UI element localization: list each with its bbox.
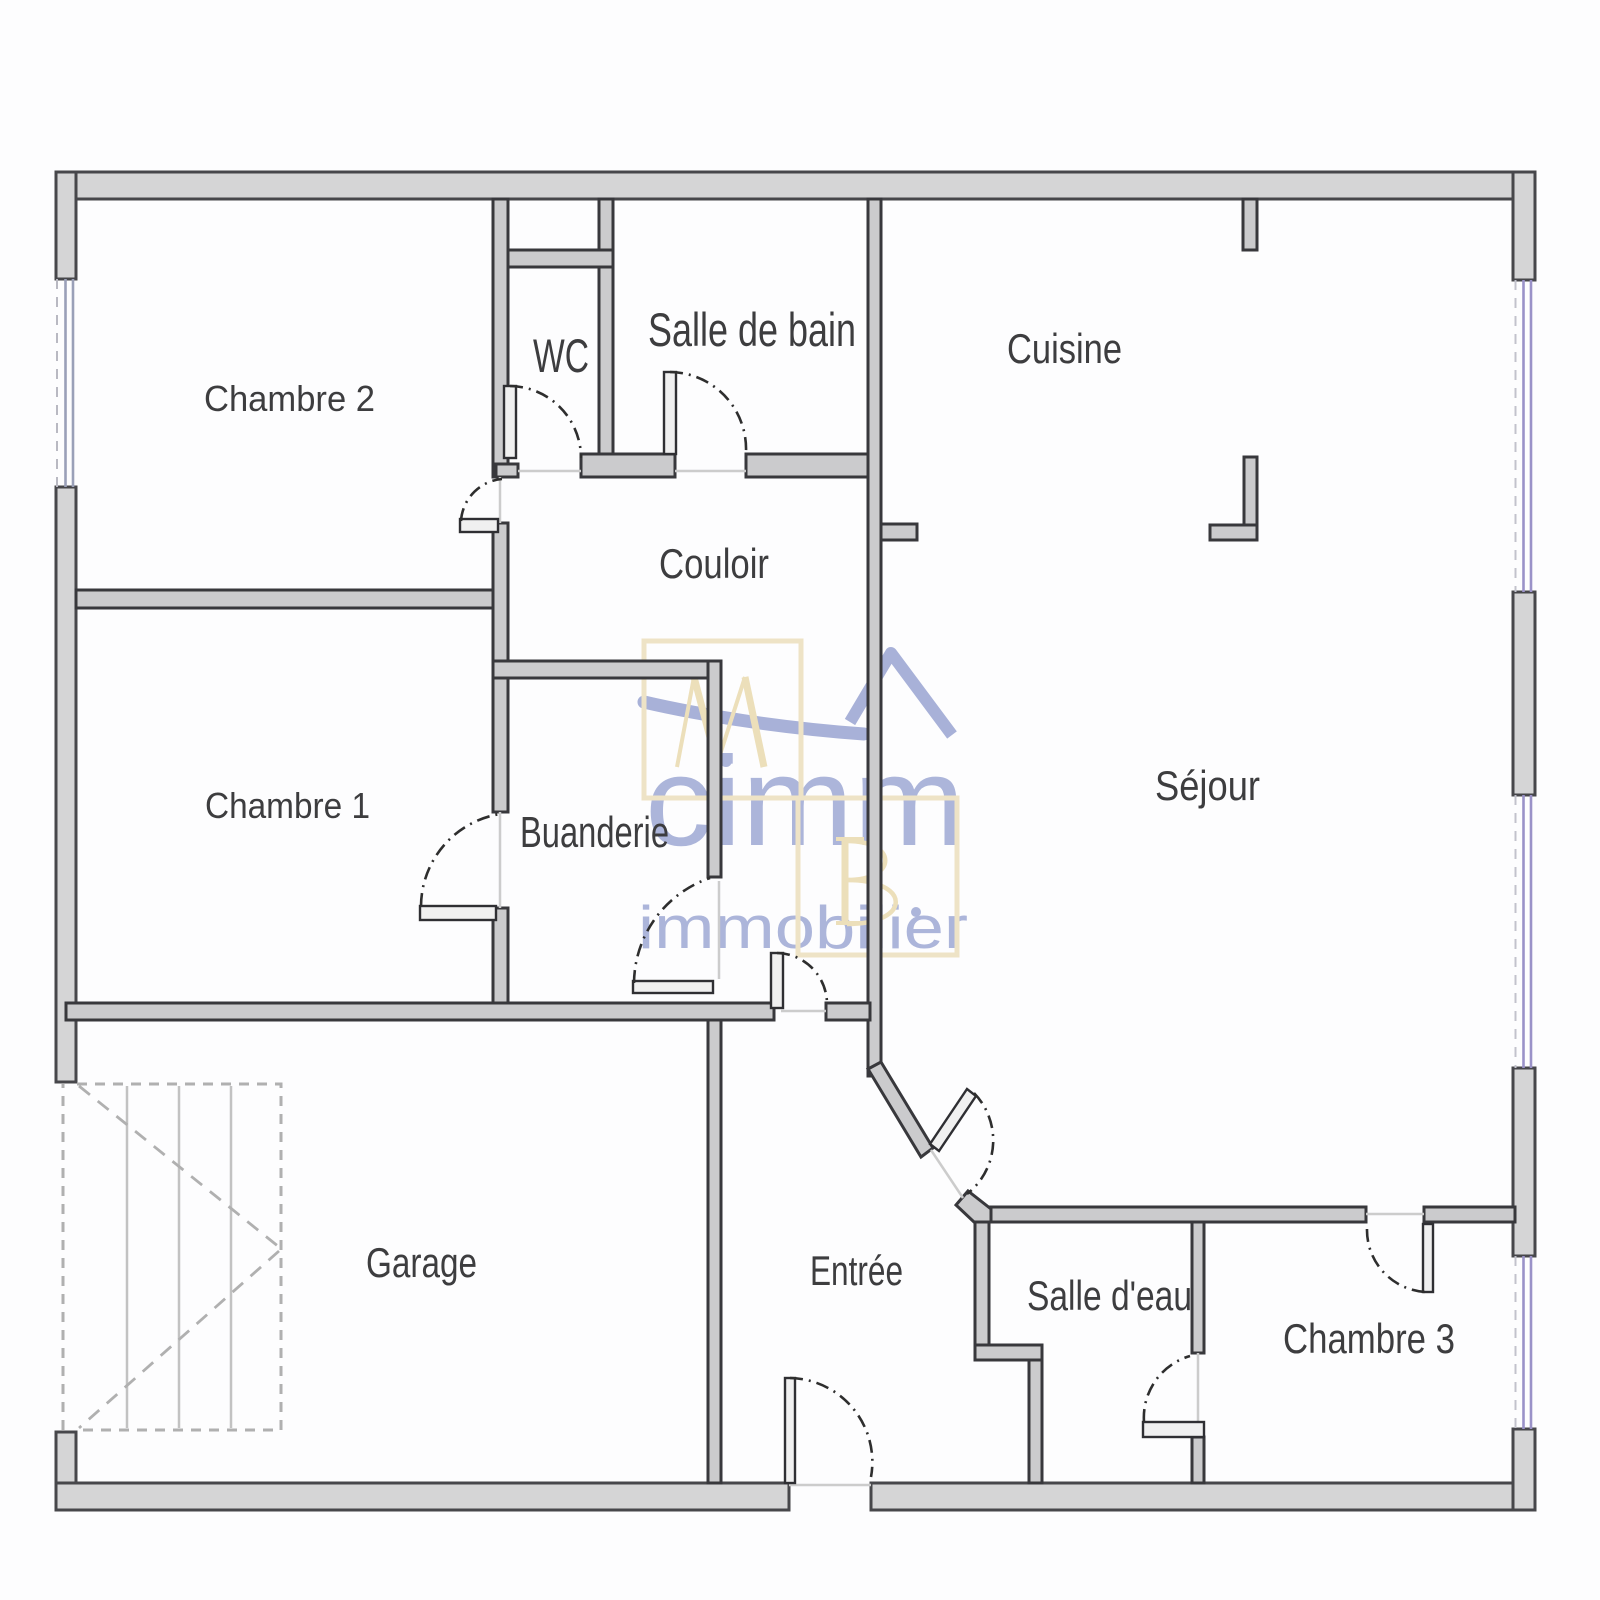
svg-text:Séjour: Séjour xyxy=(1155,762,1260,809)
svg-text:Buanderie: Buanderie xyxy=(520,808,669,857)
svg-text:Salle de bain: Salle de bain xyxy=(648,303,856,356)
svg-text:cimm: cimm xyxy=(645,730,965,872)
svg-text:Chambre 1: Chambre 1 xyxy=(205,785,370,826)
svg-text:Chambre 3: Chambre 3 xyxy=(1283,1315,1455,1362)
svg-text:Couloir: Couloir xyxy=(659,540,769,587)
svg-text:immobilier: immobilier xyxy=(638,894,968,961)
svg-text:WC: WC xyxy=(533,329,589,382)
svg-text:Cuisine: Cuisine xyxy=(1007,325,1122,372)
svg-text:Salle d'eau: Salle d'eau xyxy=(1027,1272,1192,1319)
svg-text:Entrée: Entrée xyxy=(810,1247,903,1294)
svg-text:Garage: Garage xyxy=(366,1239,477,1286)
svg-text:Chambre 2: Chambre 2 xyxy=(204,378,375,419)
